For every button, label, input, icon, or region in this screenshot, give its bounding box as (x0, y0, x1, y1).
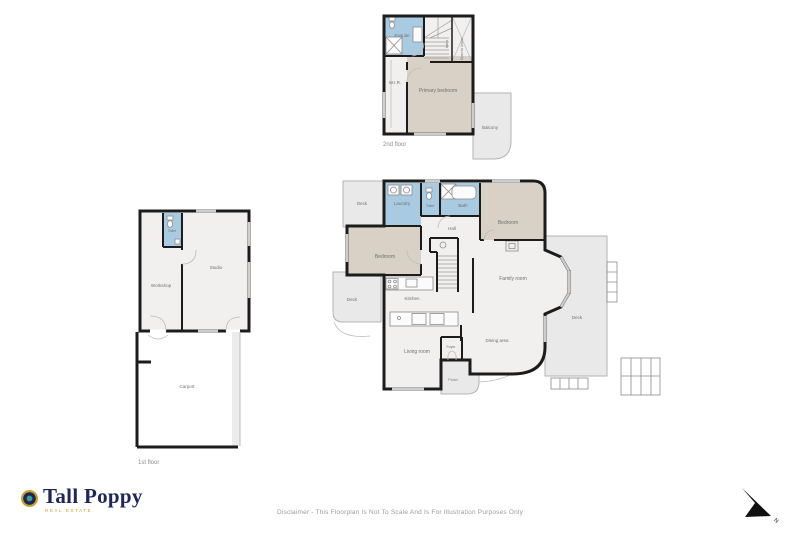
north-arrow: N (733, 484, 788, 530)
room-primary-bedroom (407, 56, 473, 134)
first-floor-footprint (140, 211, 249, 331)
floorplan-canvas: Ensuite stairs Open to below W.I.R. Prim… (0, 0, 800, 533)
brand-name: Tall Poppy (43, 486, 143, 507)
main-floor-plan: Deck Laundry Toilet Bath Hall Bedroom Be… (333, 181, 660, 395)
room-label-bedroom-left: Bedroom (375, 254, 395, 260)
floor-label-second: 2nd floor (383, 142, 406, 148)
room-label-deck-left: Deck (347, 297, 358, 302)
north-arrow-shape (742, 488, 771, 517)
room-label-laundry: Laundry (394, 201, 411, 206)
first-floor-plan: Toilet Workshop Studio Carport 1st floor (137, 211, 249, 466)
room-label-porch: Porch (448, 378, 457, 382)
room-label-hall: Hall (448, 226, 456, 231)
room-label-open-to-below: Open to below (460, 37, 464, 60)
room-label-kitchen: Kitchen (404, 296, 420, 301)
floor-label-first: 1st floor (138, 460, 159, 466)
room-label-balcony: Balcony (482, 125, 499, 130)
north-label: N (772, 518, 779, 525)
room-label-workshop: Workshop (151, 283, 172, 288)
room-label-toilet-main: Toilet (426, 204, 434, 208)
room-label-stairs: stairs (445, 40, 449, 49)
room-label-primary-bedroom: Primary bedroom (419, 88, 457, 94)
second-floor-plan: Ensuite stairs Open to below W.I.R. Prim… (383, 16, 511, 159)
carport-walls (137, 332, 238, 447)
room-label-studio: Studio (210, 265, 223, 270)
room-label-ensuite: Ensuite (394, 33, 410, 38)
pergola-grid (621, 358, 660, 395)
room-bedroom-left (347, 226, 421, 275)
room-label-deck-top: Deck (357, 201, 368, 206)
disclaimer-text: Disclaimer - This Floorplan Is Not To Sc… (0, 509, 800, 516)
room-label-toilet-first: Toilet (168, 229, 176, 233)
room-bedroom-right (480, 183, 545, 240)
room-label-dining-area: Dining area (485, 338, 509, 343)
room-label-family-room: Family room (499, 276, 527, 282)
room-label-deck-right: Deck (572, 315, 583, 320)
room-label-carport: Carport (179, 384, 195, 389)
tall-poppy-logo-icon (20, 489, 39, 508)
room-label-foyer: Foyer (447, 345, 457, 349)
room-label-wir: W.I.R. (389, 80, 401, 85)
room-label-living-room: Living room (404, 349, 430, 355)
carport-side-band (232, 332, 240, 446)
room-label-bath: Bath (458, 203, 468, 208)
room-label-bedroom-right: Bedroom (498, 220, 518, 226)
